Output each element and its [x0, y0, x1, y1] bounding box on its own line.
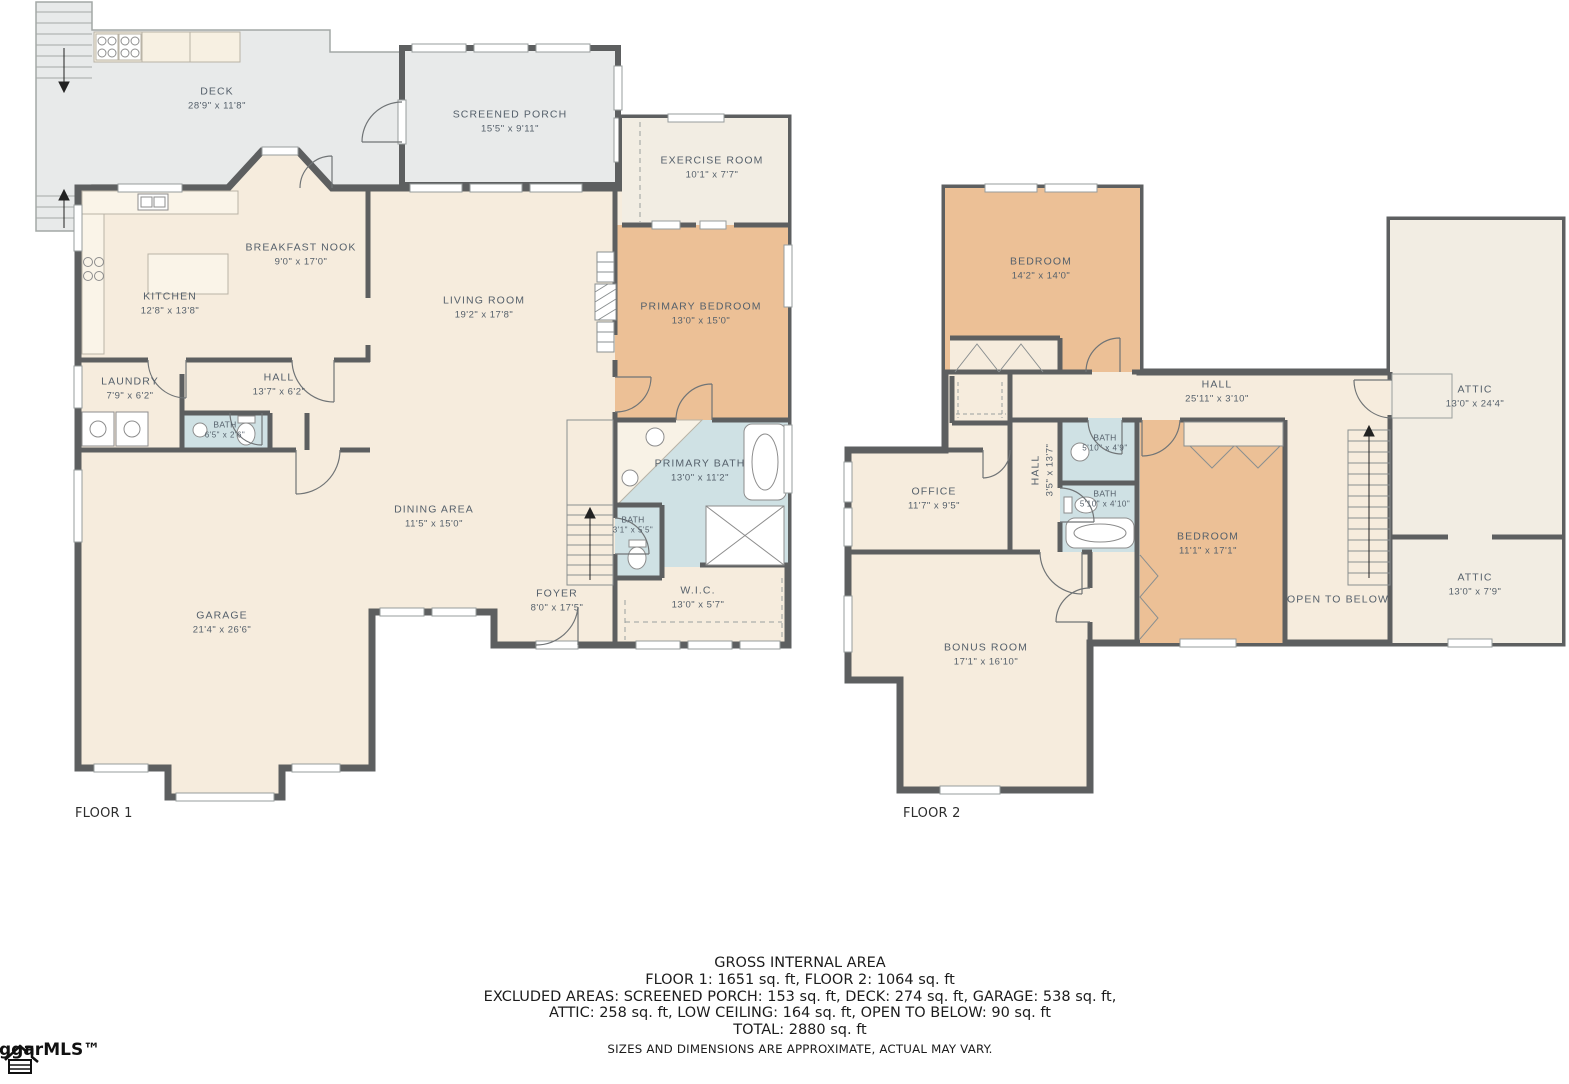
room-label-laundry: LAUNDRY7'9" x 6'2" — [101, 376, 159, 403]
summary-excluded2: ATTIC: 258 sq. ft, LOW CEILING: 164 sq. … — [484, 1005, 1117, 1022]
attic-landing — [1392, 374, 1452, 418]
room-label-bedroom1: BEDROOM14'2" x 14'0" — [1010, 256, 1072, 283]
room-label-bonus-room: BONUS ROOM17'1" x 16'10" — [944, 642, 1028, 669]
summary-disclaimer: SIZES AND DIMENSIONS ARE APPROXIMATE, AC… — [484, 1041, 1117, 1058]
room-label-open-to-below: OPEN TO BELOW — [1287, 594, 1389, 607]
room-label-dining-area: DINING AREA11'5" x 15'0" — [394, 504, 474, 531]
area-summary: GROSS INTERNAL AREA FLOOR 1: 1651 sq. ft… — [484, 955, 1117, 1058]
floorplan-drawing — [0, 0, 1569, 1084]
kitchen-sink-icon — [138, 194, 168, 210]
room-label-small-bath: BATH3'1" x 5'5" — [613, 515, 653, 536]
deck-counter — [94, 32, 240, 62]
mls-logo: ggarMLS™ — [2, 1040, 100, 1060]
summary-title: GROSS INTERNAL AREA — [484, 955, 1117, 972]
room-label-exercise-room: EXERCISE ROOM10'1" x 7'7" — [661, 155, 764, 182]
room-label-hall-vertical: HALL3'5" x 13'7" — [1030, 444, 1057, 497]
room-label-attic2: ATTIC13'0" x 7'9" — [1449, 572, 1502, 599]
room-label-bedroom2: BEDROOM11'1" x 17'1" — [1177, 531, 1239, 558]
room-label-bath1-floor2: BATH5'10" x 4'9" — [1082, 433, 1127, 454]
fireplace — [595, 252, 616, 352]
room-label-garage: GARAGE21'4" x 26'6" — [193, 610, 252, 637]
room-label-breakfast-nook: BREAKFAST NOOK9'0" x 17'0" — [246, 242, 357, 269]
room-label-hall-floor2: HALL25'11" x 3'10" — [1185, 379, 1249, 406]
floor1-tag: FLOOR 1 — [75, 806, 133, 821]
room-label-bath2-floor2: BATH5'10" x 4'10" — [1080, 489, 1130, 510]
house-icon — [2, 1040, 44, 1076]
summary-excluded: EXCLUDED AREAS: SCREENED PORCH: 153 sq. … — [484, 989, 1117, 1006]
room-label-living-room: LIVING ROOM19'2" x 17'8" — [443, 295, 525, 322]
room-label-hall-bath: BATH6'5" x 2'6" — [205, 420, 245, 441]
room-label-primary-bedroom: PRIMARY BEDROOM13'0" x 15'0" — [640, 301, 761, 328]
room-label-attic1: ATTIC13'0" x 24'4" — [1446, 384, 1505, 411]
floor2-tag: FLOOR 2 — [903, 806, 961, 821]
room-label-office: OFFICE11'7" x 9'5" — [908, 486, 960, 513]
floorplan-page: DECK28'9" x 11'8" SCREENED PORCH15'5" x … — [0, 0, 1569, 1084]
room-label-primary-bath: PRIMARY BATH13'0" x 11'2" — [655, 458, 746, 485]
room-label-hall-floor1: HALL13'7" x 6'2" — [253, 372, 306, 399]
summary-floors: FLOOR 1: 1651 sq. ft, FLOOR 2: 1064 sq. … — [484, 972, 1117, 989]
summary-total: TOTAL: 2880 sq. ft — [484, 1022, 1117, 1039]
room-label-wic: W.I.C.13'0" x 5'7" — [672, 585, 725, 612]
room-label-foyer: FOYER8'0" x 17'5" — [531, 588, 584, 615]
bedroom1-closet — [950, 338, 1060, 372]
room-label-screened-porch: SCREENED PORCH15'5" x 9'11" — [453, 109, 568, 136]
room-label-deck: DECK28'9" x 11'8" — [188, 86, 246, 113]
room-label-kitchen: KITCHEN12'8" x 13'8" — [141, 291, 200, 318]
